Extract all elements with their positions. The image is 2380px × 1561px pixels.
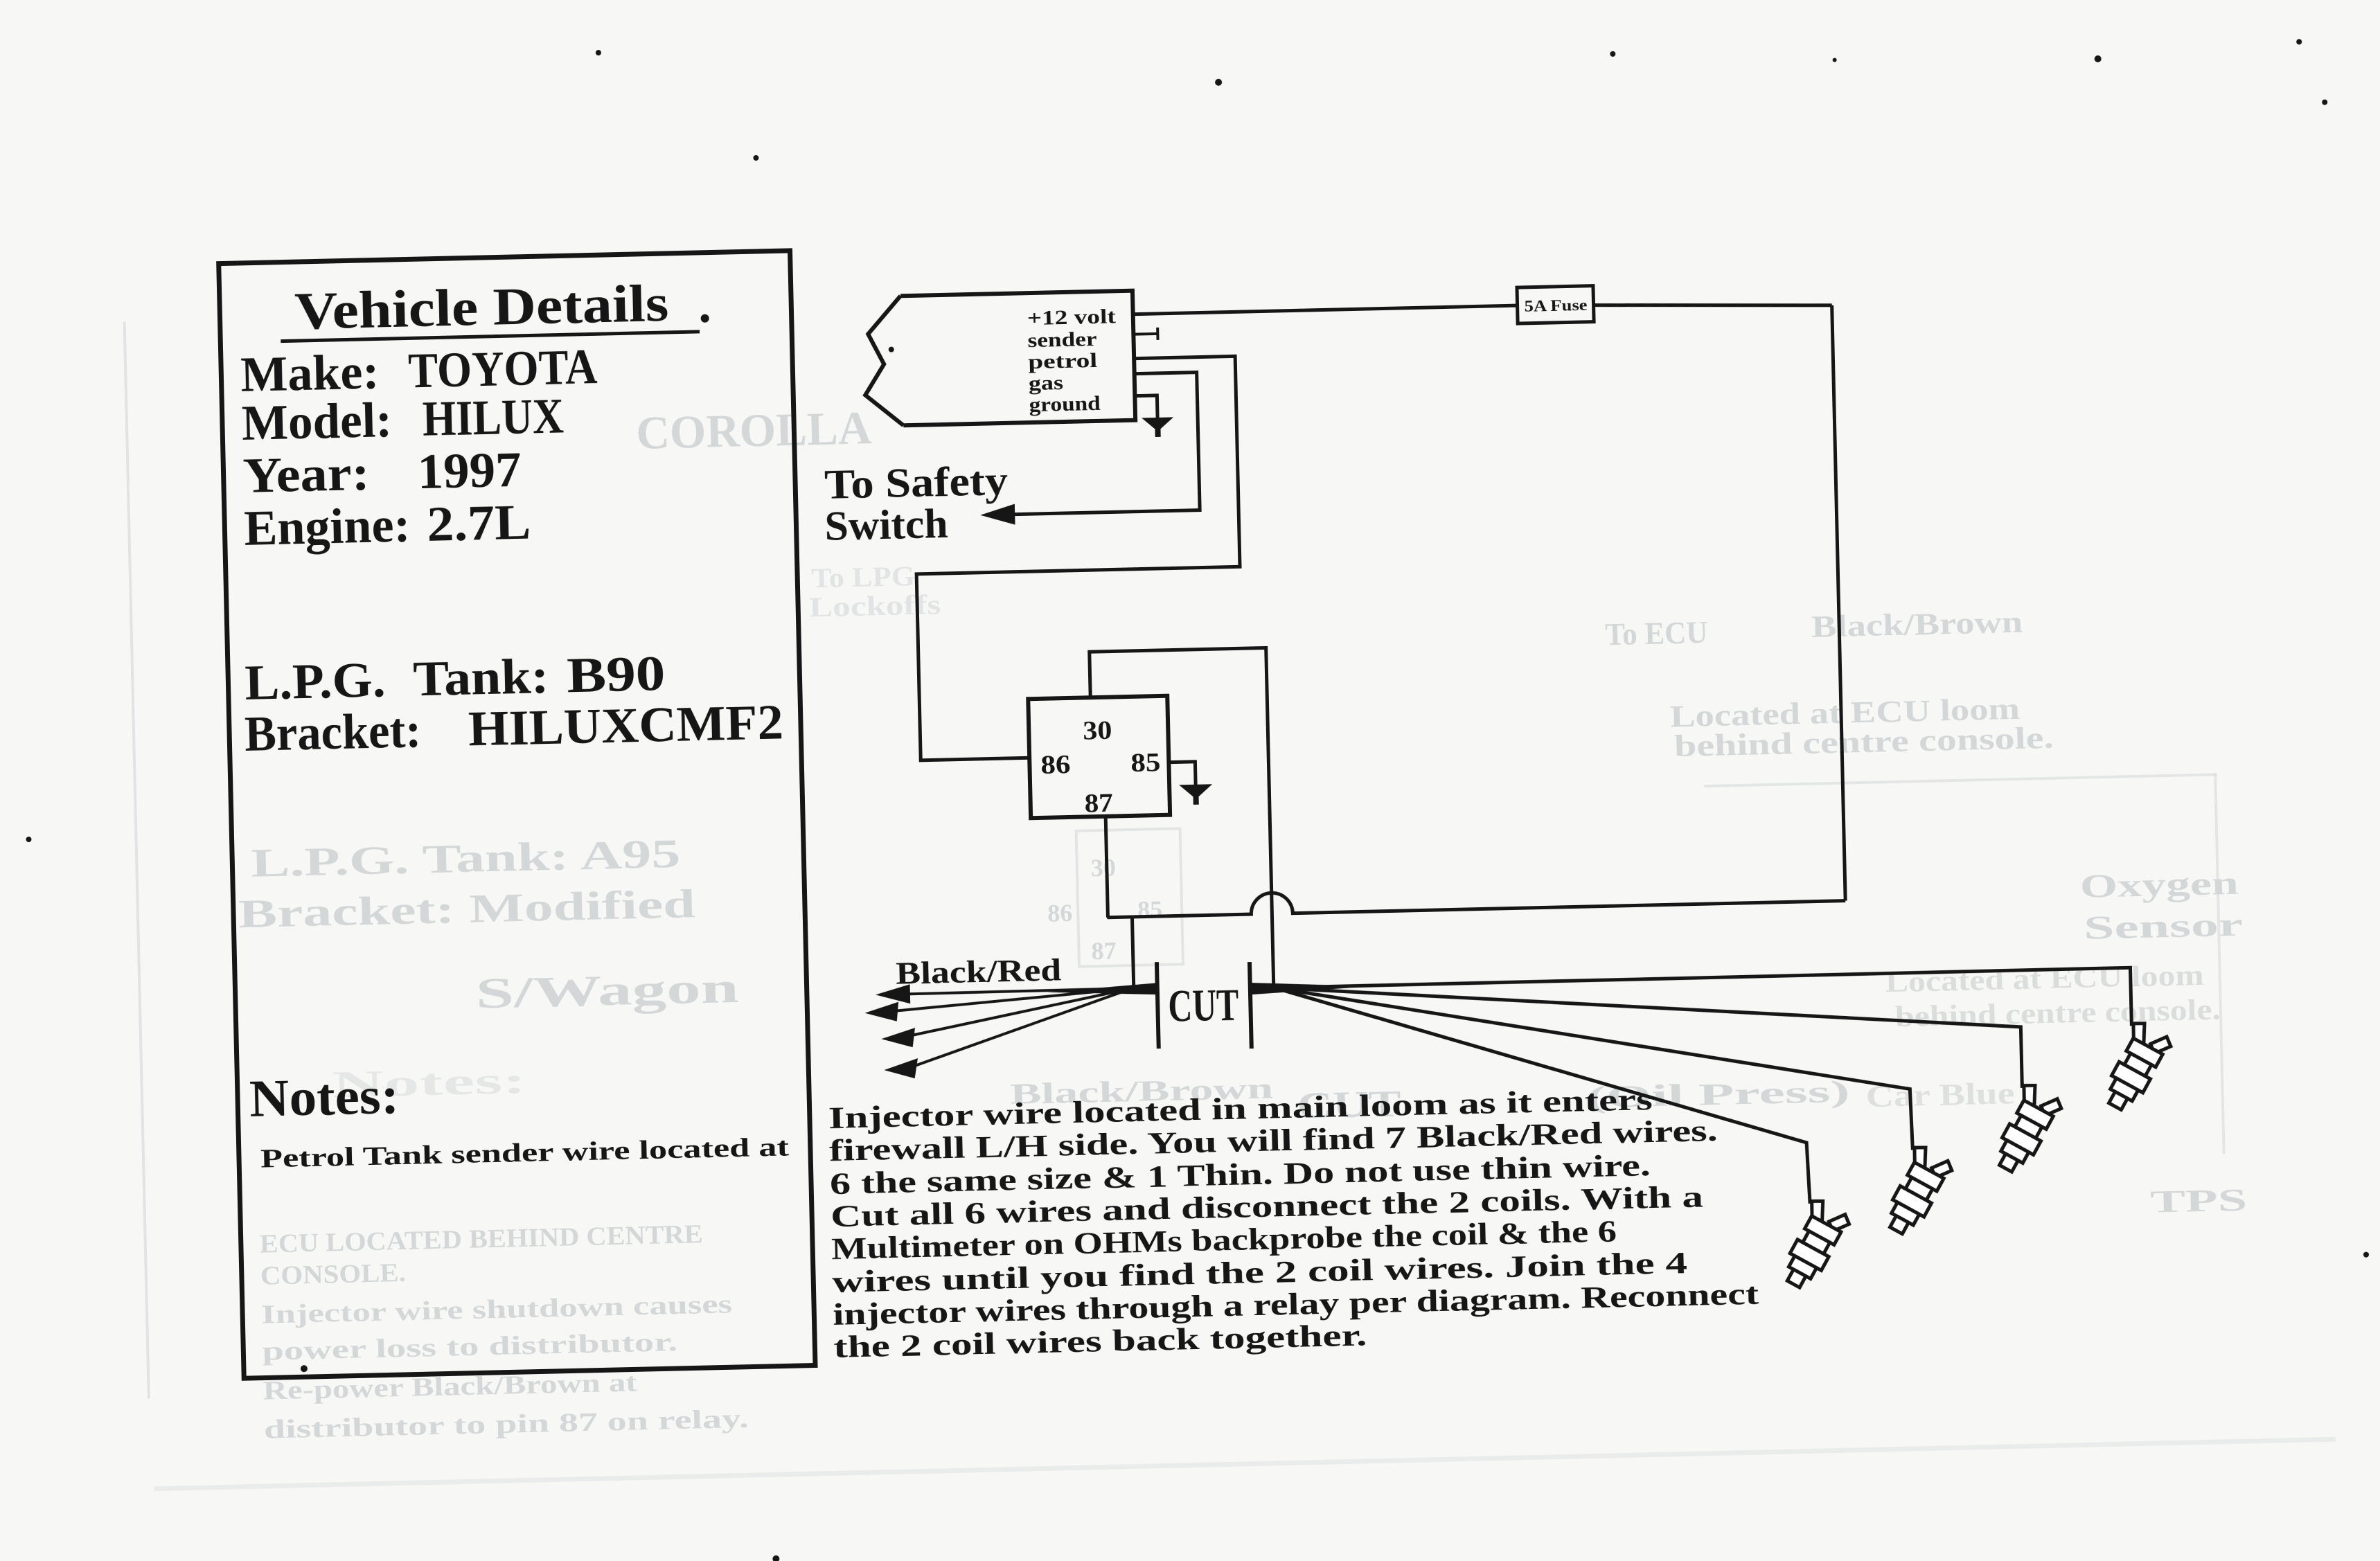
svg-text:2.7L: 2.7L	[426, 494, 531, 552]
svg-text:+12 volt: +12 volt	[1027, 305, 1116, 330]
svg-text:Bracket:: Bracket:	[244, 702, 422, 762]
svg-text:85: 85	[1137, 895, 1163, 924]
svg-text:To ECU: To ECU	[1605, 614, 1708, 652]
svg-text:Notes:: Notes:	[249, 1067, 400, 1128]
svg-text:CONSOLE.: CONSOLE.	[260, 1258, 406, 1291]
svg-text:COROLLA: COROLLA	[636, 401, 873, 459]
svg-text:Car Blue: Car Blue	[1865, 1076, 2015, 1114]
svg-text:5A Fuse: 5A Fuse	[1524, 296, 1588, 315]
svg-text:Bracket: Modified: Bracket: Modified	[238, 881, 695, 936]
svg-text:gas: gas	[1029, 371, 1064, 395]
svg-text:ground: ground	[1029, 392, 1101, 416]
svg-text:85: 85	[1130, 748, 1161, 778]
svg-text:30: 30	[1083, 716, 1112, 746]
svg-text:Year:: Year:	[242, 445, 371, 503]
svg-text:Black/Red: Black/Red	[896, 952, 1062, 990]
svg-text:B90: B90	[566, 645, 666, 703]
svg-text:ECU LOCATED BEHIND CENTRE: ECU LOCATED BEHIND CENTRE	[259, 1220, 703, 1259]
svg-text:L.P.G.: L.P.G.	[245, 652, 387, 711]
svg-text:Vehicle Details: Vehicle Details	[294, 274, 669, 341]
svg-text:Lockoffs: Lockoffs	[809, 589, 941, 623]
svg-text:Injector wire shutdown causes: Injector wire shutdown causes	[261, 1290, 733, 1329]
svg-text:CUT: CUT	[1168, 979, 1240, 1031]
svg-text:Black/Brown: Black/Brown	[1811, 605, 2023, 644]
svg-text:HILUXCMF2: HILUXCMF2	[468, 694, 784, 756]
svg-text:L.P.G. Tank: A95: L.P.G. Tank: A95	[251, 831, 681, 886]
svg-text:Tank:: Tank:	[412, 648, 549, 706]
svg-text:87: 87	[1084, 789, 1113, 819]
svg-text:To LPG: To LPG	[811, 560, 916, 594]
svg-text:Engine:: Engine:	[243, 497, 411, 555]
svg-text:petrol: petrol	[1028, 349, 1098, 373]
svg-text:1997: 1997	[417, 442, 522, 499]
svg-text:Model:: Model:	[241, 392, 393, 451]
svg-text:sender: sender	[1027, 328, 1097, 352]
svg-text:S/Wagon: S/Wagon	[475, 965, 739, 1018]
svg-text:86: 86	[1047, 899, 1073, 927]
svg-text:TPS: TPS	[2150, 1182, 2248, 1220]
svg-text:30: 30	[1090, 853, 1116, 882]
svg-text:Switch: Switch	[824, 501, 948, 549]
svg-text:power loss to distributor.: power loss to distributor.	[262, 1328, 678, 1366]
svg-text:behind centre console.: behind centre console.	[1894, 994, 2221, 1033]
svg-text:Petrol Tank sender wire locate: Petrol Tank sender wire located at	[260, 1132, 790, 1173]
svg-text:HILUX: HILUX	[422, 388, 565, 447]
svg-text:Located at ECU loom: Located at ECU loom	[1885, 960, 2204, 999]
svg-text:To Safety: To Safety	[824, 458, 1008, 508]
svg-text:87: 87	[1091, 936, 1117, 965]
svg-text:86: 86	[1040, 750, 1071, 780]
svg-text:distributor to pin 87 on relay: distributor to pin 87 on relay.	[263, 1404, 749, 1445]
svg-text:Oxygen: Oxygen	[2079, 865, 2239, 905]
